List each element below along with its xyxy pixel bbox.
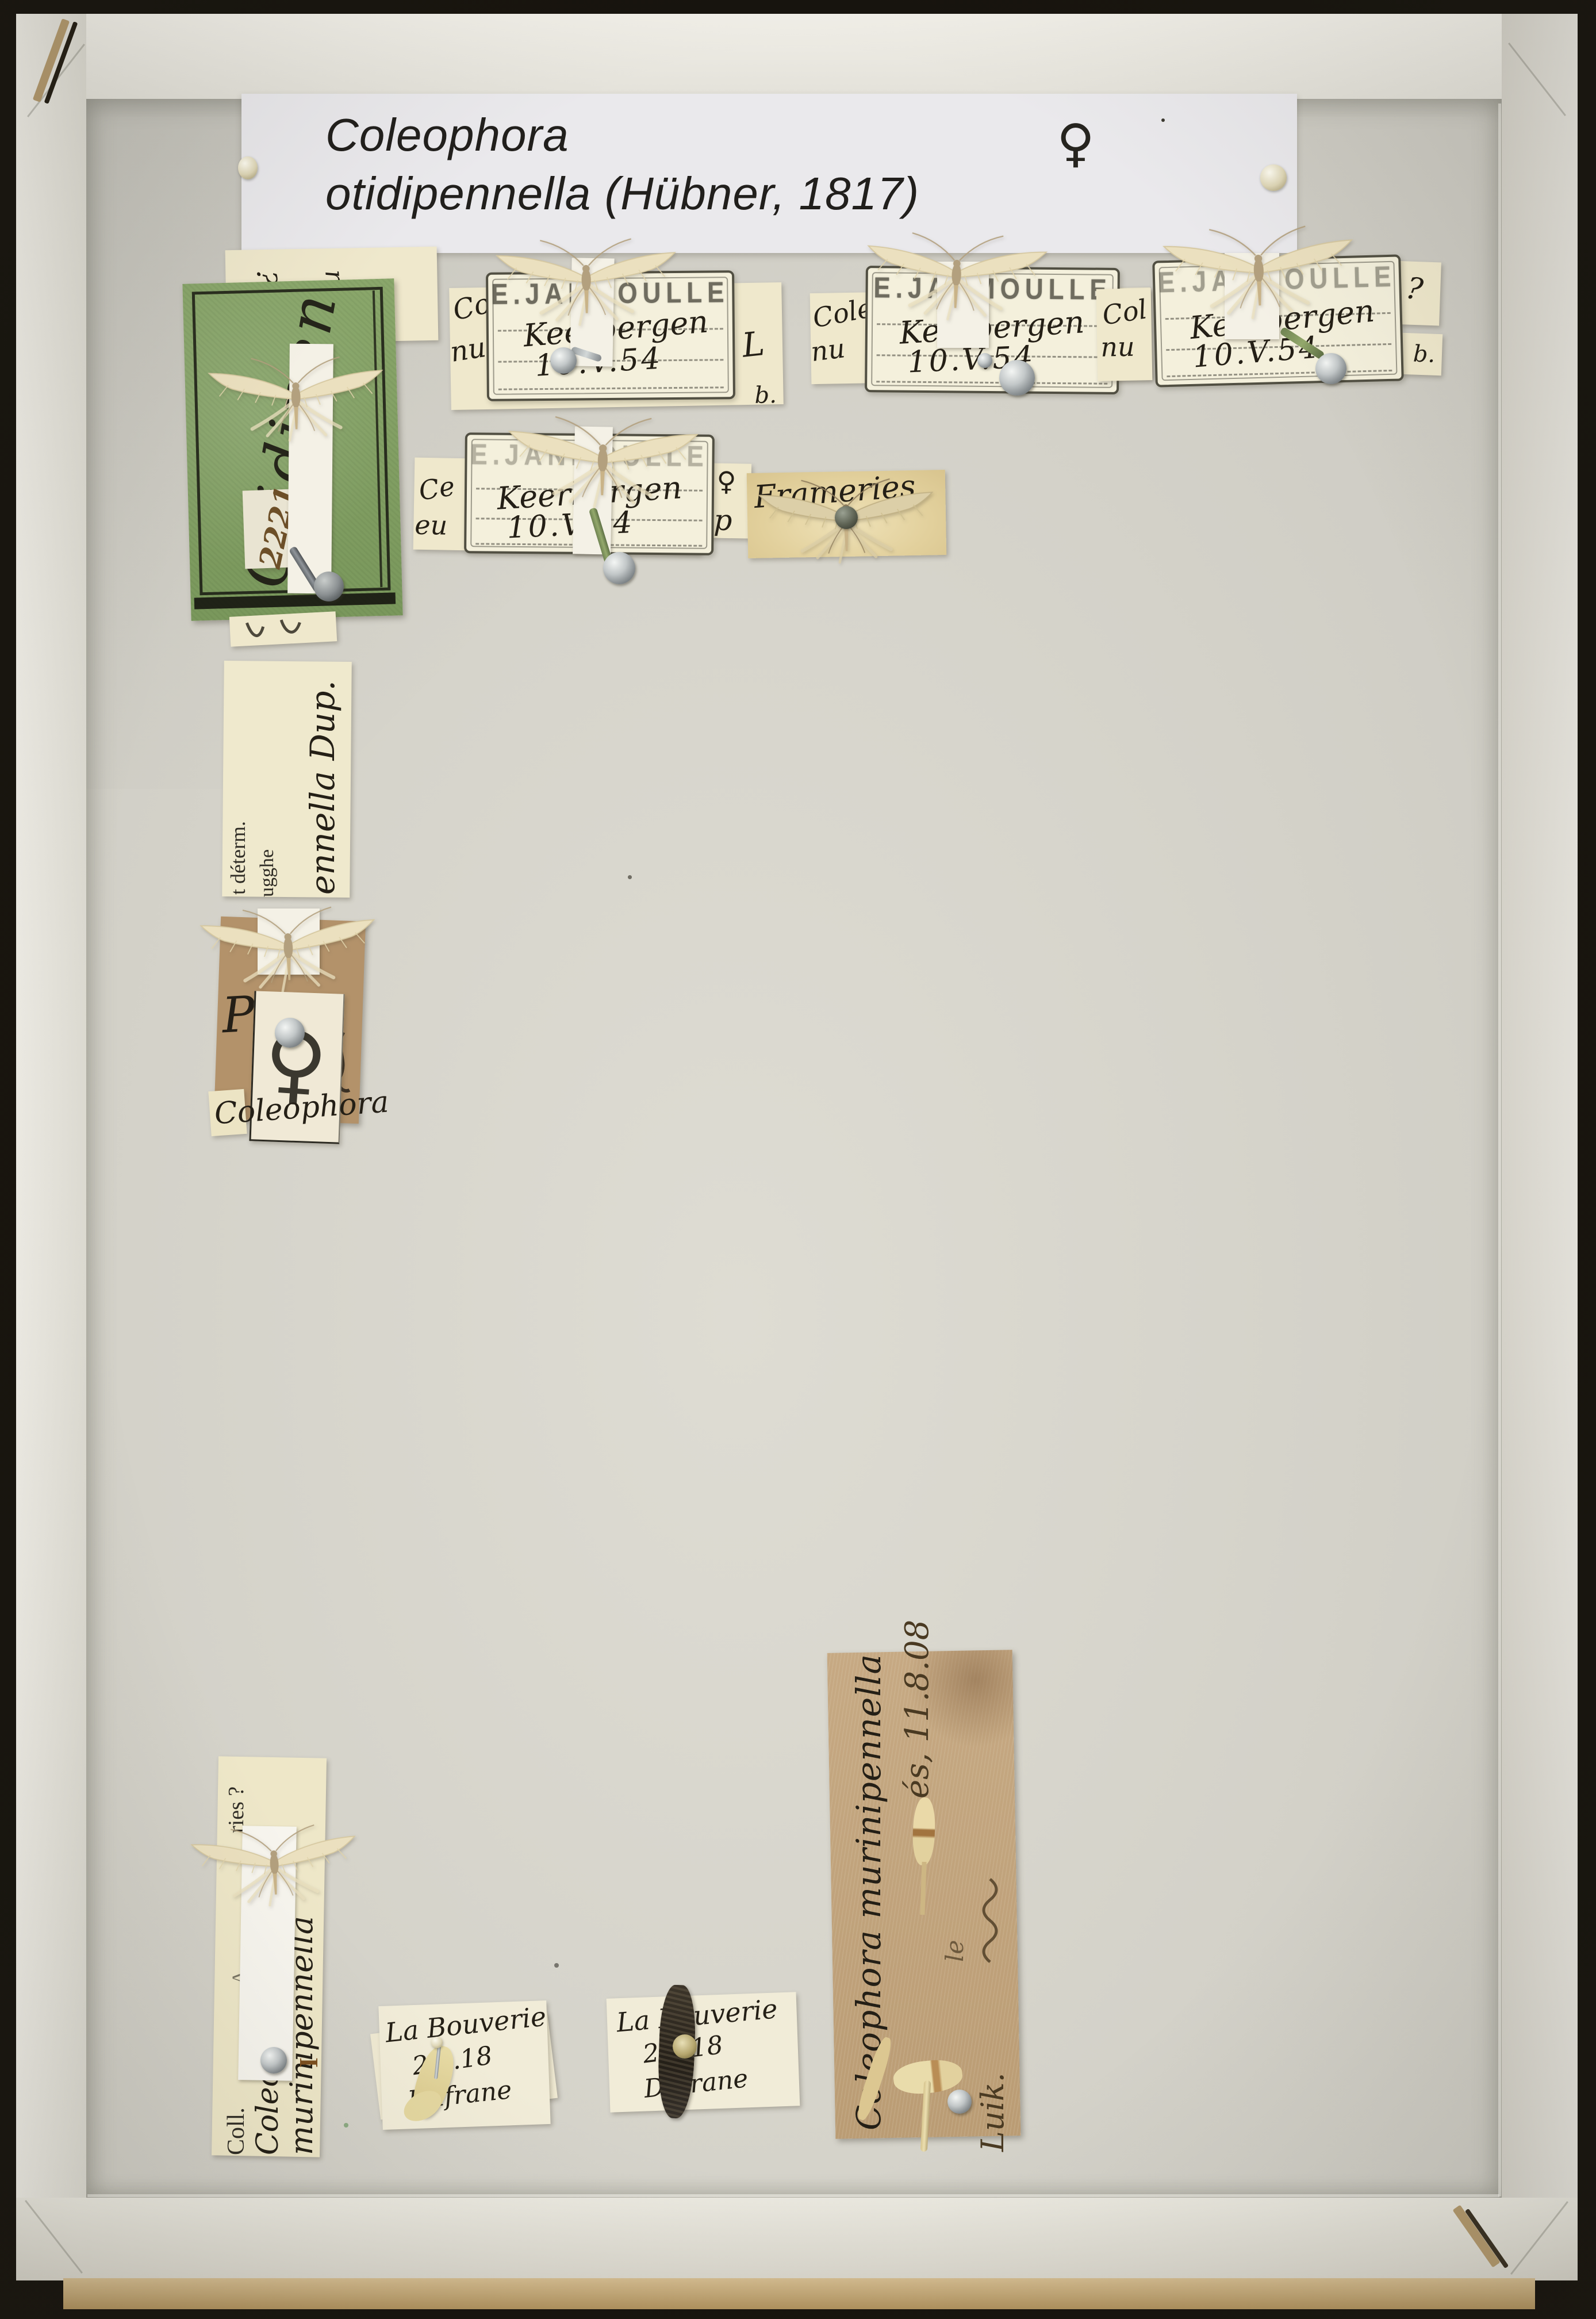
label-fragment: b.	[754, 384, 777, 407]
box-wall-top	[16, 14, 1576, 99]
female-symbol: ♀	[1057, 113, 1095, 174]
locality-handwriting: La Bouverie	[615, 1995, 778, 2036]
dust-speck	[628, 875, 632, 879]
pin-head	[1315, 353, 1346, 384]
coll-printed-bottom: Coll.	[224, 2069, 248, 2155]
label-fragment: ?	[1404, 273, 1425, 305]
field-label-date: és, 11.8.08	[901, 1675, 934, 1799]
moth-specimen	[482, 221, 691, 359]
label-fragment: eu	[415, 512, 448, 539]
moth-specimen	[745, 462, 948, 596]
pin-head	[999, 360, 1035, 396]
moth-specimen	[177, 1807, 373, 1941]
coll-mark: I	[296, 2039, 322, 2068]
label-fragment: nu	[809, 335, 846, 365]
drawer-exterior-wood-strip	[63, 2278, 1535, 2309]
la-bouverie-label: La Bouverie 2.6.18 Dufrane	[607, 1992, 800, 2112]
moth-specimen	[492, 398, 713, 545]
box-edge-highlight	[1498, 104, 1501, 2197]
box-wall-right	[1502, 14, 1578, 2280]
pin-head	[550, 347, 577, 374]
label-fragment-paper: Coleophora	[208, 1089, 247, 1136]
pin-head	[947, 2090, 972, 2114]
label-fragment: p	[713, 506, 732, 535]
genus-name: Coleophora	[325, 109, 569, 162]
moth-specimen	[194, 340, 398, 474]
label-fragment-paper	[229, 611, 337, 647]
dotted-rule	[876, 381, 1107, 385]
pin-head	[1260, 164, 1287, 191]
field-label-note: le	[943, 1910, 967, 1962]
box-wall-left	[16, 14, 86, 2280]
pin-head	[673, 2034, 697, 2059]
label-fragment: ♀	[716, 468, 736, 495]
pin-head	[275, 1018, 305, 1048]
dotted-rule	[498, 386, 724, 390]
moth-specimen	[850, 214, 1062, 356]
box-edge-highlight	[87, 2194, 1499, 2197]
pin-head	[260, 2047, 287, 2073]
script-stroke	[974, 1875, 1006, 1978]
determ-printed-line: ugghe	[258, 776, 277, 897]
dust-speck	[554, 1963, 559, 1968]
label-fragment: nu	[1100, 334, 1135, 361]
header-species-label: Coleophora otidipennella (Hübner, 1817) …	[241, 94, 1297, 253]
script-stroke	[241, 614, 323, 643]
field-label-locality: Luik.	[977, 1979, 1008, 2152]
dust-speck	[1161, 118, 1165, 122]
pin-head	[603, 552, 635, 584]
pin-head	[314, 572, 344, 601]
dust-speck	[344, 2123, 348, 2128]
moth-specimen	[1148, 206, 1371, 356]
label-fragment: b.	[1413, 342, 1436, 366]
label-fragment: Ce	[417, 473, 456, 504]
label-fragment: nu	[448, 334, 488, 366]
determ-handwriting: ennella Dup.	[306, 665, 339, 895]
pin-head	[431, 2037, 443, 2048]
backing-label: b.	[1401, 333, 1442, 375]
specimen-drawer-photo: Coleophora otidipennella (Hübner, 1817) …	[0, 0, 1596, 2319]
pin-head	[977, 353, 992, 368]
label-fragment: L	[741, 327, 766, 362]
pin-head	[238, 156, 258, 179]
backing-label: Col nu	[1096, 288, 1153, 381]
card-frame-band	[194, 592, 396, 609]
label-fragment: Col	[1100, 296, 1149, 329]
pin-head	[835, 506, 858, 529]
locality-handwriting: La Bouverie	[384, 2003, 547, 2046]
species-author-line: otidipennella (Hübner, 1817)	[325, 167, 919, 220]
box-wall-bottom	[16, 2198, 1578, 2280]
determ-printed-line: t déterm.	[228, 728, 248, 895]
